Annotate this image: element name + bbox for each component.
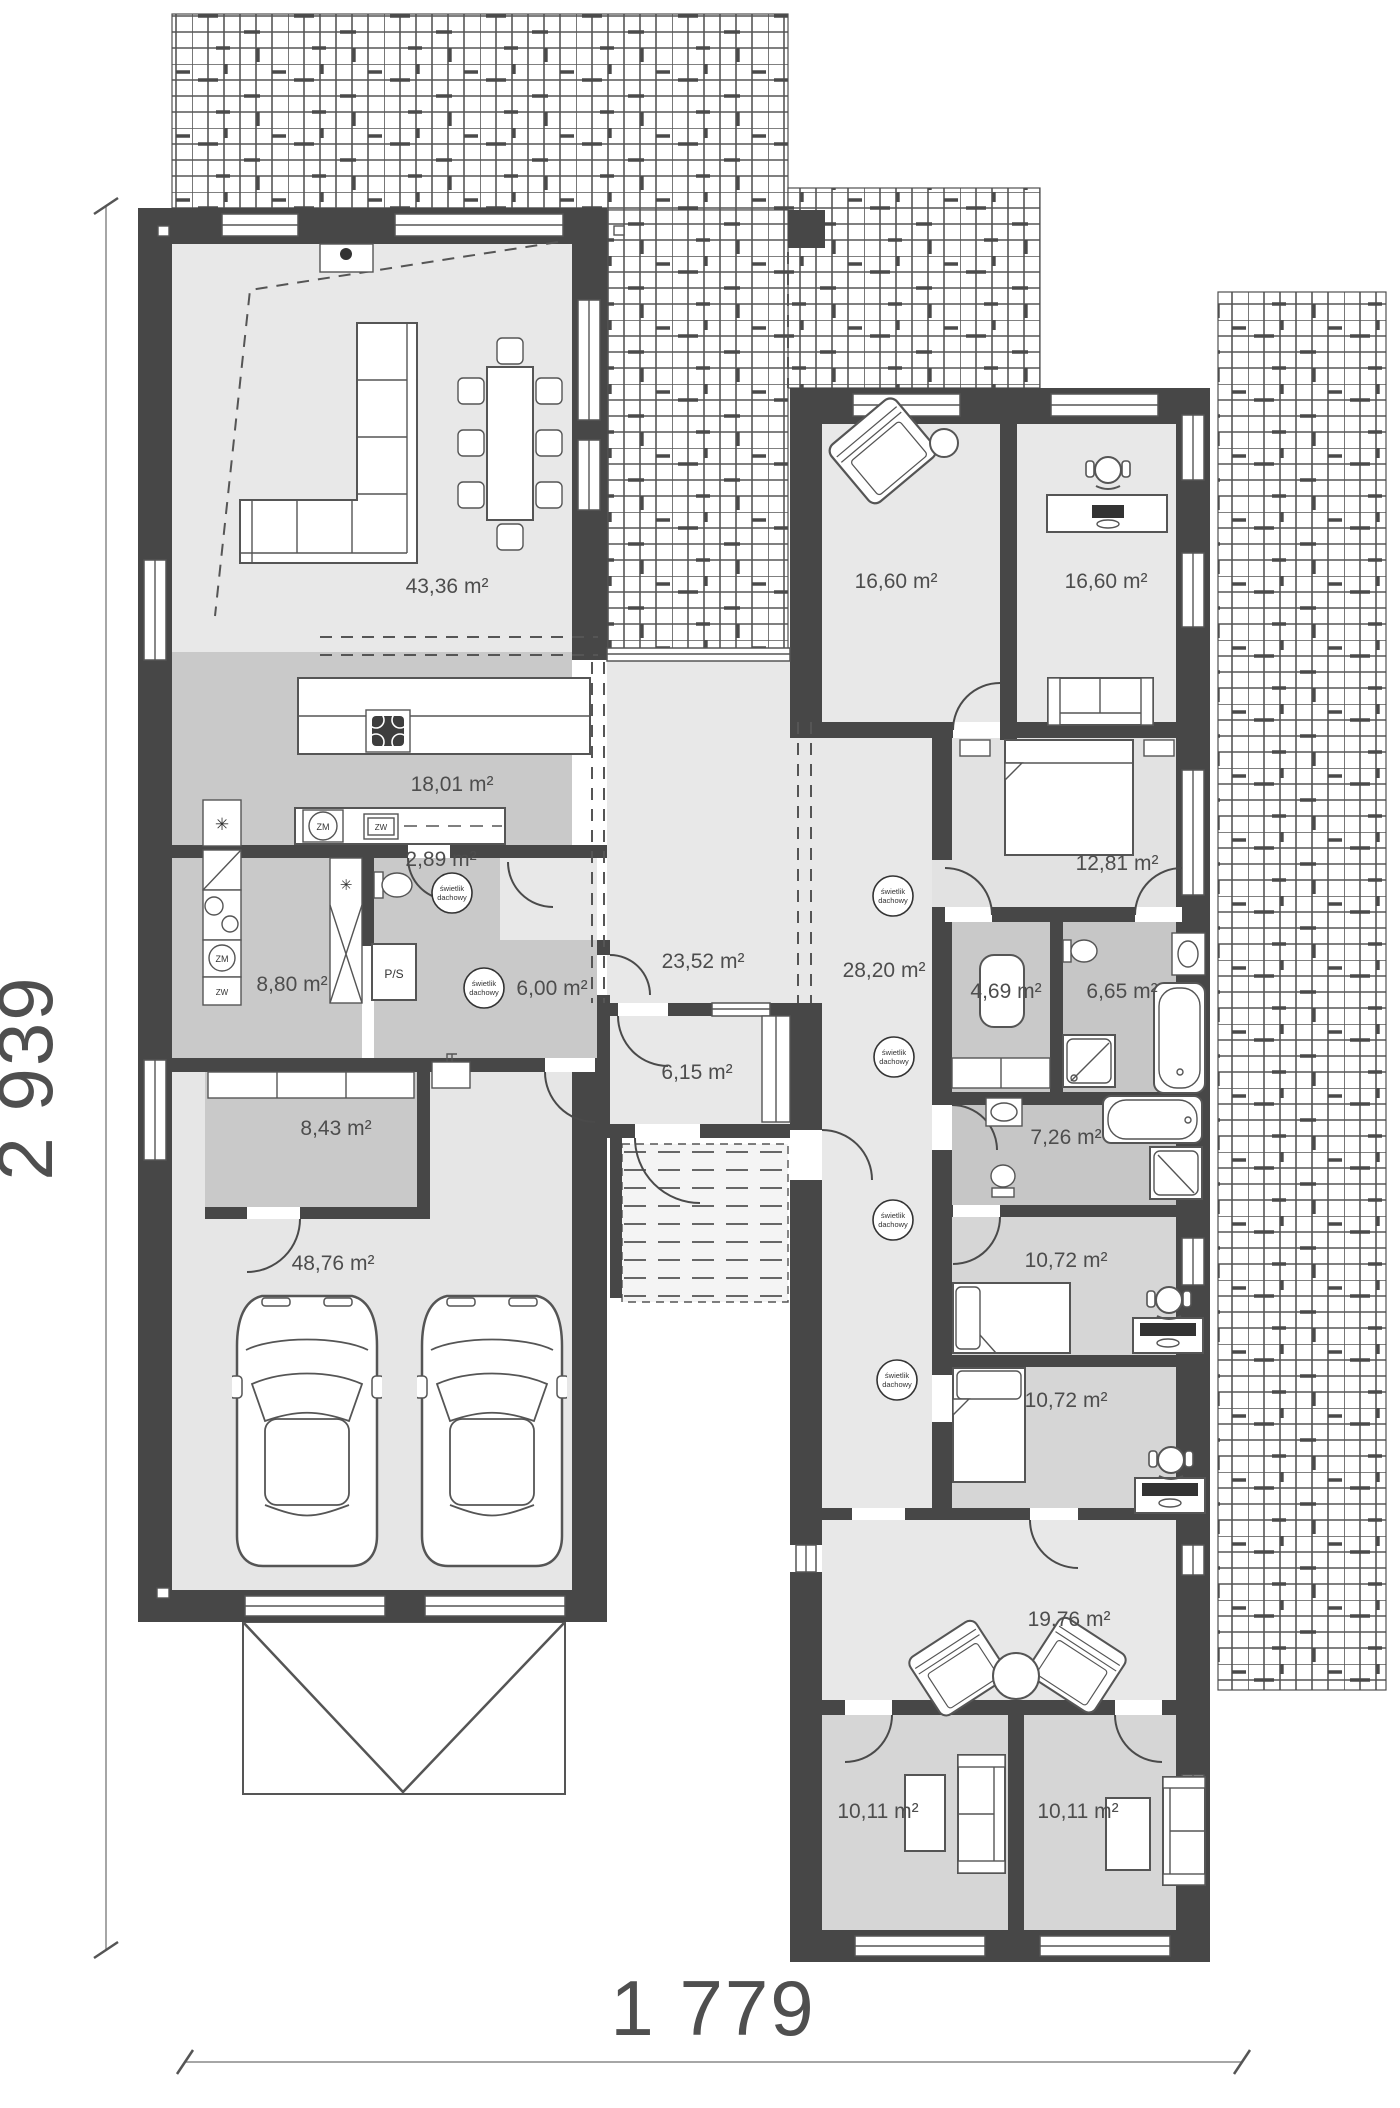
freezer-icon: ✳ (215, 815, 229, 835)
window (1182, 1545, 1204, 1575)
floor-corridor (822, 738, 932, 1520)
laundry-closet: P/S (372, 944, 416, 1000)
window (796, 1545, 816, 1572)
room-area-label: 4,69 m² (970, 980, 1041, 1003)
svg-text:dachowy: dachowy (878, 1220, 908, 1229)
svg-text:świetlik: świetlik (472, 979, 496, 988)
window (1051, 394, 1158, 416)
room-area-label: 43,36 m² (406, 575, 489, 598)
sink (1172, 933, 1205, 975)
skylight-symbol: świetlik dachowy (873, 1200, 913, 1240)
freezer-icon: ✳ (340, 876, 353, 894)
room-area-label: 6,00 m² (516, 977, 587, 1000)
roof-area-north (172, 14, 788, 210)
kitchen-counter: ZM ZW (295, 808, 505, 844)
room-area-label: 7,26 m² (1030, 1126, 1101, 1149)
dishwasher-label: ZM (216, 954, 229, 964)
roof-area-terrace (607, 210, 788, 652)
window (1182, 1238, 1204, 1285)
room-area-label: 23,52 m² (662, 950, 745, 973)
room-area-label: 8,80 m² (256, 973, 327, 996)
svg-text:dachowy: dachowy (882, 1380, 912, 1389)
window (578, 440, 600, 510)
freezer-label: ZW (216, 988, 229, 997)
corner-marker (157, 1588, 169, 1598)
dimension-horizontal: 1 779 (177, 1964, 1250, 2074)
window (712, 1003, 770, 1016)
corner-marker (614, 226, 624, 235)
entry-deck (610, 1136, 788, 1302)
window (578, 300, 600, 420)
fireplace (320, 244, 373, 272)
room-area-label: 12,81 m² (1076, 852, 1159, 875)
room-area-label: 19,76 m² (1028, 1608, 1111, 1631)
room-area-label: 28,20 m² (843, 959, 926, 982)
nightstand (960, 740, 990, 756)
dimension-height-label: 2 939 (0, 975, 69, 1180)
glass-wall (607, 648, 790, 661)
corner-marker (158, 226, 169, 236)
roof-area-northeast (788, 188, 1040, 388)
pantry-appliances: ✳ ZM ZW (203, 800, 241, 1005)
vestibule-closet (762, 1016, 790, 1122)
room-area-label: 10,11 m² (837, 1800, 918, 1823)
room-area-label: 16,60 m² (855, 570, 938, 593)
svg-text:świetlik: świetlik (881, 887, 905, 896)
window (144, 560, 166, 660)
toilet (1071, 940, 1097, 962)
office-sofa (1048, 678, 1153, 725)
window (1182, 770, 1204, 895)
window (1040, 1936, 1170, 1956)
room-area-label: 48,76 m² (292, 1252, 375, 1275)
window (855, 1936, 985, 1956)
bathtub (1103, 1096, 1202, 1143)
svg-text:dachowy: dachowy (878, 896, 908, 905)
pantry-wardrobe: ✳ (330, 858, 362, 1003)
svg-text:świetlik: świetlik (881, 1211, 905, 1220)
window (144, 1060, 166, 1160)
room-area-label: 16,60 m² (1065, 570, 1148, 593)
round-table (993, 1653, 1039, 1699)
floor-link (790, 738, 822, 1003)
svg-text:świetlik: świetlik (882, 1048, 906, 1057)
window (222, 214, 298, 236)
room-area-label: 10,72 m² (1025, 1389, 1108, 1412)
freezer-label: ZW (375, 823, 388, 832)
room-area-label: 10,11 m² (1037, 1800, 1118, 1823)
roof-area-east (1218, 292, 1386, 1690)
svg-text:świetlik: świetlik (885, 1371, 909, 1380)
svg-text:dachowy: dachowy (437, 893, 467, 902)
garage-door (425, 1596, 565, 1616)
window (1182, 553, 1204, 627)
window (395, 214, 563, 236)
svg-text:dachowy: dachowy (879, 1057, 909, 1066)
room-area-label: 6,65 m² (1086, 980, 1157, 1003)
floor-passage (500, 858, 597, 940)
skylight-symbol: świetlik dachowy (464, 968, 504, 1008)
car-right (415, 1296, 569, 1566)
window (1182, 415, 1204, 480)
svg-text:świetlik: świetlik (440, 884, 464, 893)
room-area-label: 8,43 m² (300, 1117, 371, 1140)
floor-plan-page: ZM ZW ✳ ZM ZW ✳ P/S (0, 0, 1400, 2108)
room-area-label: 18,01 m² (411, 773, 494, 796)
skylight-symbol: świetlik dachowy (873, 876, 913, 916)
svg-text:dachowy: dachowy (469, 988, 499, 997)
car-left (230, 1296, 384, 1566)
garage-apron (243, 1622, 565, 1794)
room-area-label: 6,15 m² (661, 1061, 732, 1084)
garage-door (245, 1596, 385, 1616)
room-area-label: 2,89 m² (405, 848, 476, 871)
kitchen-island (298, 678, 590, 754)
bathtub (1154, 983, 1205, 1093)
side-table (930, 429, 958, 457)
dishwasher-label: ZM (317, 822, 330, 832)
washer-dryer-label: P/S (384, 967, 403, 981)
dimension-width-label: 1 779 (610, 1964, 815, 2052)
room-area-label: 10,72 m² (1025, 1249, 1108, 1272)
skylight-symbol: świetlik dachowy (432, 873, 472, 913)
nightstand (1144, 740, 1174, 756)
skylight-symbol: świetlik dachowy (877, 1360, 917, 1400)
skylight-symbol: świetlik dachowy (874, 1037, 914, 1077)
floor-plan-drawing: ZM ZW ✳ ZM ZW ✳ P/S (0, 0, 1400, 2108)
dimension-vertical: 2 939 (0, 198, 118, 1958)
wc-toilet (374, 872, 412, 898)
chimney (788, 210, 825, 248)
toilet (991, 1165, 1015, 1187)
storage-shelves (208, 1072, 414, 1098)
